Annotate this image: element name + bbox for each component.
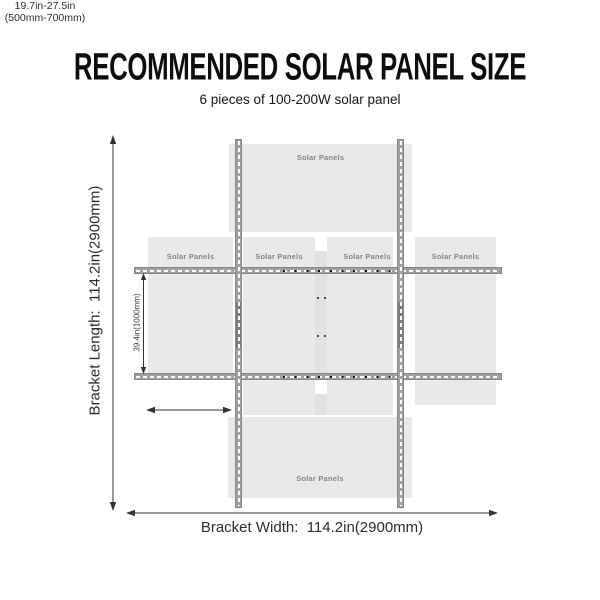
bolt-icon — [317, 297, 319, 299]
bolt-icon — [317, 335, 319, 337]
panel-offset-label-line1: 19.7in-27.5in — [0, 0, 90, 12]
vertical-bracket-rail-left — [235, 139, 242, 508]
rail-slot-pattern — [238, 141, 240, 506]
solar-panel-size-diagram: RECOMMENDED SOLAR PANEL SIZE 6 pieces of… — [0, 0, 600, 600]
rail-spacing-label: 39.4in(1000mm) — [133, 278, 142, 368]
bracket-width-label: Bracket Width: 114.2in(2900mm) — [112, 519, 512, 536]
bracket-width-dimension-arrow — [126, 506, 498, 520]
bolt-icon — [324, 335, 326, 337]
center-connector-strip — [315, 237, 327, 415]
panel-offset-label-line2: (500mm-700mm) — [0, 12, 90, 24]
page-title: RECOMMENDED SOLAR PANEL SIZE — [72, 46, 528, 90]
bracket-length-dimension-arrow — [105, 135, 123, 511]
horizontal-bracket-rail-top — [134, 267, 502, 274]
rail-bolt-dots — [283, 376, 393, 378]
panel-middle-right-center: Solar Panels — [327, 237, 393, 415]
panel-middle-left-outer: Solar Panels — [148, 237, 233, 379]
connector-notch — [315, 237, 327, 251]
panel-label: Solar Panels — [148, 252, 233, 261]
panel-middle-left-center: Solar Panels — [243, 237, 315, 415]
panel-offset-dimension-arrow — [146, 404, 232, 416]
panel-label: Solar Panels — [415, 252, 496, 261]
panel-label: Solar Panels — [243, 252, 315, 261]
panel-offset-label: 19.7in-27.5in (500mm-700mm) — [0, 0, 90, 24]
panel-bottom-center: Solar Panels — [228, 417, 412, 498]
panel-label: Solar Panels — [341, 252, 393, 261]
horizontal-bracket-rail-bottom — [134, 373, 502, 380]
panel-label: Solar Panels — [229, 153, 412, 162]
bracket-length-label: Bracket Length: 114.2in(2900mm) — [87, 170, 104, 432]
rail-bolt-dots — [283, 270, 393, 272]
page-subtitle: 6 pieces of 100-200W solar panel — [0, 92, 600, 107]
connector-notch — [315, 380, 327, 394]
panel-label: Solar Panels — [228, 474, 412, 483]
rail-slot-pattern — [400, 141, 402, 506]
bolt-icon — [324, 297, 326, 299]
vertical-bracket-rail-right — [397, 139, 404, 508]
panel-top-center: Solar Panels — [229, 144, 412, 232]
